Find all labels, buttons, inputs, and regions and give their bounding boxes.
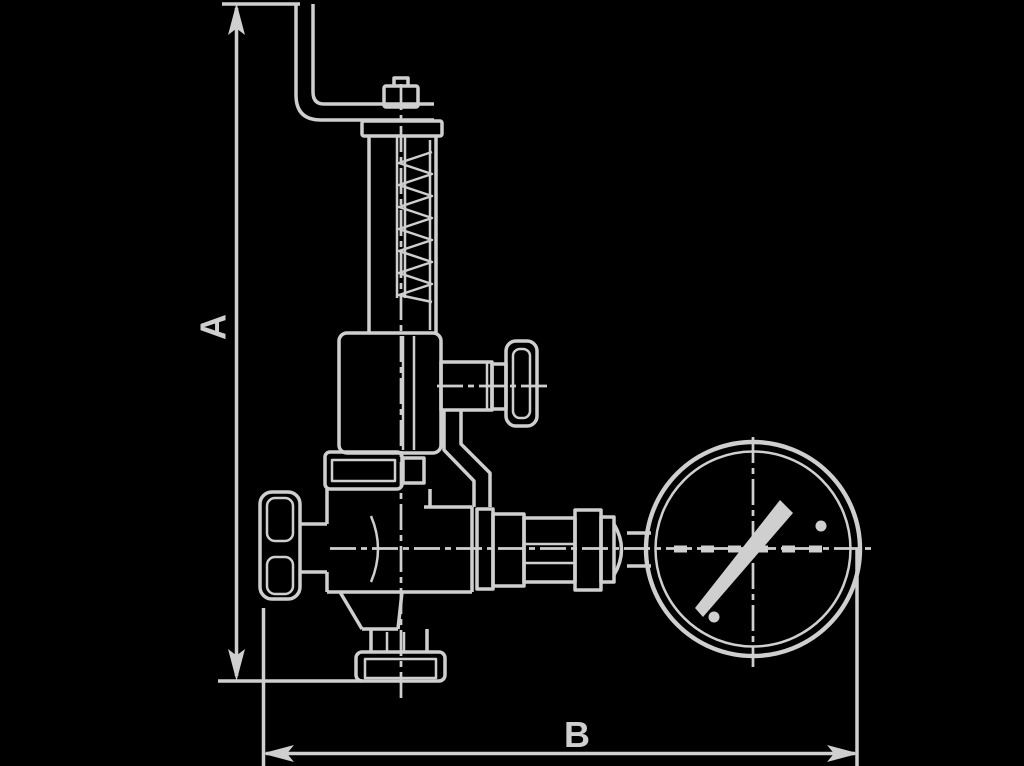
test-valve-knob xyxy=(506,341,537,426)
lever-handle xyxy=(296,4,434,120)
body-taper xyxy=(340,592,402,629)
handwheel-stem xyxy=(300,524,327,572)
gauge-needle xyxy=(695,500,793,617)
pressure-gauge xyxy=(646,437,860,667)
gauge-dot-left xyxy=(709,612,720,623)
upper-body xyxy=(339,333,441,453)
valve-body xyxy=(327,489,472,652)
elbow-pipe xyxy=(444,410,490,507)
dimension-b-label: B xyxy=(564,714,590,755)
union-nut xyxy=(325,452,424,489)
handwheel xyxy=(260,492,327,599)
drawing-canvas: A B xyxy=(0,0,1024,766)
valve-assembly xyxy=(260,4,872,700)
valve-dimension-drawing: A B xyxy=(0,0,1024,766)
gauge-dot-right xyxy=(816,521,827,532)
dimension-a-label: A xyxy=(193,314,234,340)
test-valve xyxy=(437,341,552,507)
